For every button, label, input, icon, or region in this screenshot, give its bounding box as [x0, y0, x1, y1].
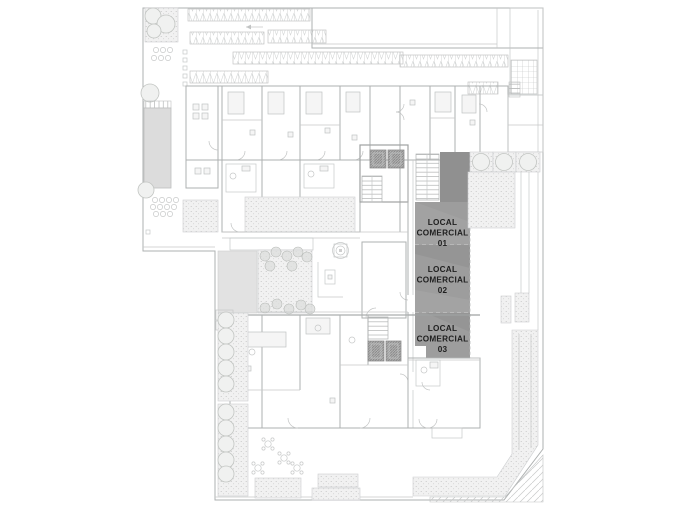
landscape-left: [138, 8, 179, 234]
patio-table: [252, 462, 264, 474]
parking-row: [190, 71, 268, 83]
amenity-room: [362, 242, 406, 318]
svg-text:COMERCIAL: COMERCIAL: [417, 276, 469, 285]
drive-arrow-icon: [246, 25, 263, 30]
parking-row: [468, 82, 498, 94]
fountain: [333, 243, 349, 259]
lobby: [186, 86, 218, 188]
bushes: [151, 47, 172, 60]
furniture: [228, 92, 476, 140]
local-comercial-units: LOCAL COMERCIAL 01 LOCAL COMERCIAL 02 LO…: [415, 152, 470, 358]
parking-row: [268, 30, 326, 43]
svg-text:01: 01: [438, 239, 448, 248]
tree: [473, 154, 490, 171]
garden-right: [468, 152, 540, 323]
svg-text:COMERCIAL: COMERCIAL: [417, 335, 469, 344]
commercial-staircase: [416, 154, 439, 200]
svg-text:LOCAL: LOCAL: [428, 324, 457, 333]
parking-row: [233, 52, 403, 64]
parking-row: [188, 9, 310, 21]
staircase: [368, 317, 388, 339]
garden-bed: [468, 172, 515, 228]
svg-text:02: 02: [438, 286, 448, 295]
patio-table: [291, 462, 303, 474]
parking-row: [190, 32, 264, 44]
svg-text:LOCAL: LOCAL: [428, 218, 457, 227]
svg-text:LOCAL: LOCAL: [428, 265, 457, 274]
stair-elevator-core-upper: [360, 145, 408, 202]
parking-area: [183, 9, 508, 94]
local-comercial-01-shade: [440, 152, 470, 202]
tree: [496, 154, 513, 171]
svg-text:COMERCIAL: COMERCIAL: [417, 229, 469, 238]
courtyard: [183, 197, 408, 318]
bay-window: [432, 428, 462, 438]
seating-circles: [150, 197, 178, 216]
site-marker: [146, 230, 150, 234]
patio-table: [262, 438, 274, 450]
tree: [520, 154, 537, 171]
svg-text:03: 03: [438, 345, 448, 354]
pool-deck: [144, 101, 171, 108]
pool: [144, 108, 171, 188]
patio-table: [278, 452, 290, 464]
courtyard-south: [252, 438, 360, 500]
curb-ticks: [183, 50, 187, 86]
tree: [147, 24, 161, 38]
floor-plan-canvas: LOCAL COMERCIAL 01 LOCAL COMERCIAL 02 LO…: [0, 0, 680, 510]
tree: [138, 182, 154, 198]
parking-row: [400, 55, 508, 67]
tree: [141, 84, 159, 102]
tree-strip-left: [216, 251, 257, 496]
lobby-tables: [193, 104, 210, 174]
paved-slab: [218, 251, 257, 313]
floor-plan-page: LOCAL COMERCIAL 01 LOCAL COMERCIAL 02 LO…: [0, 0, 680, 510]
